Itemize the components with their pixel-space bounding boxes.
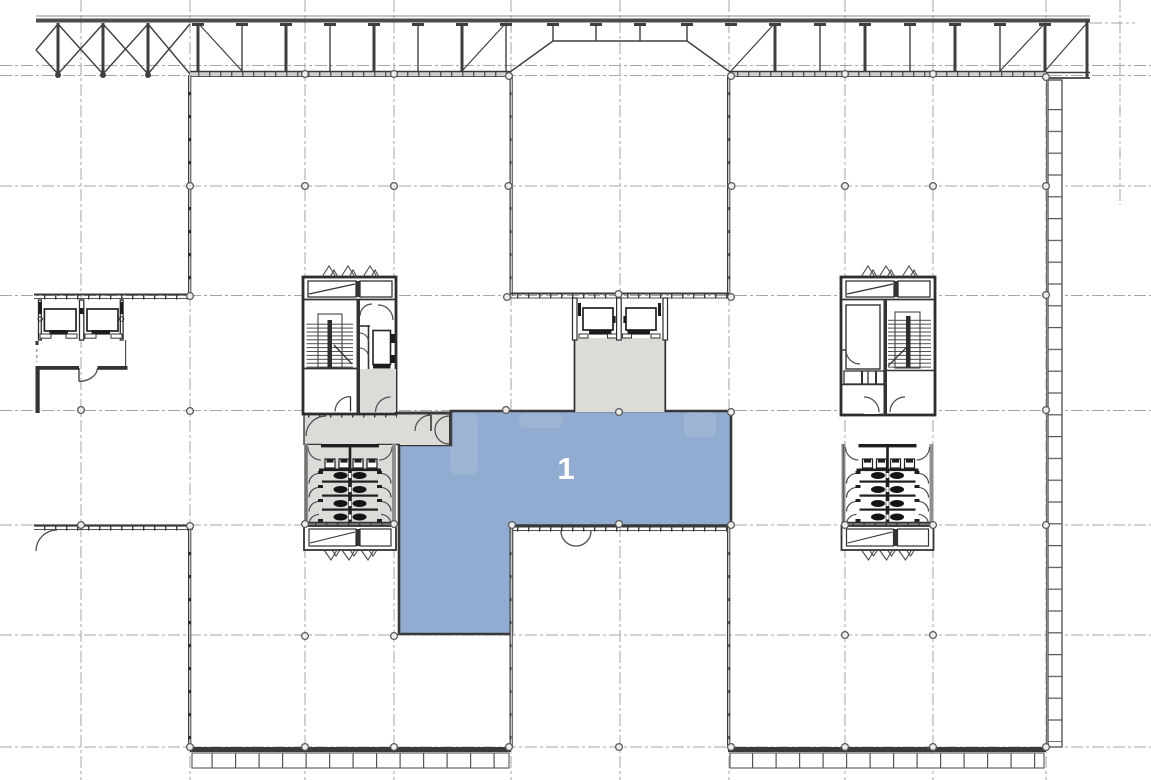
- svg-text:1: 1: [557, 451, 574, 486]
